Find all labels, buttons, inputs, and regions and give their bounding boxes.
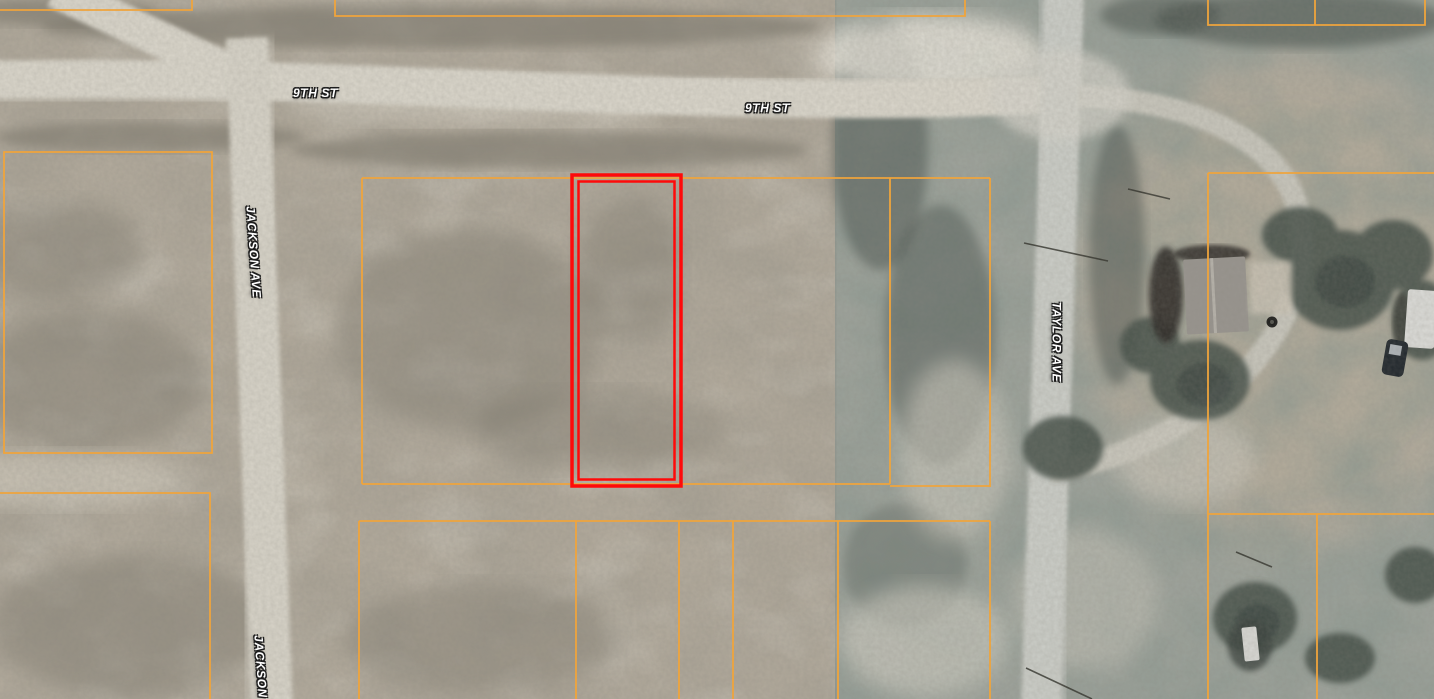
satellite-imagery xyxy=(0,0,1434,699)
aerial-map[interactable]: 9TH ST 9TH ST JACKSON AVE JACKSON AVE TA… xyxy=(0,0,1434,699)
grain-overlay xyxy=(0,0,1434,699)
